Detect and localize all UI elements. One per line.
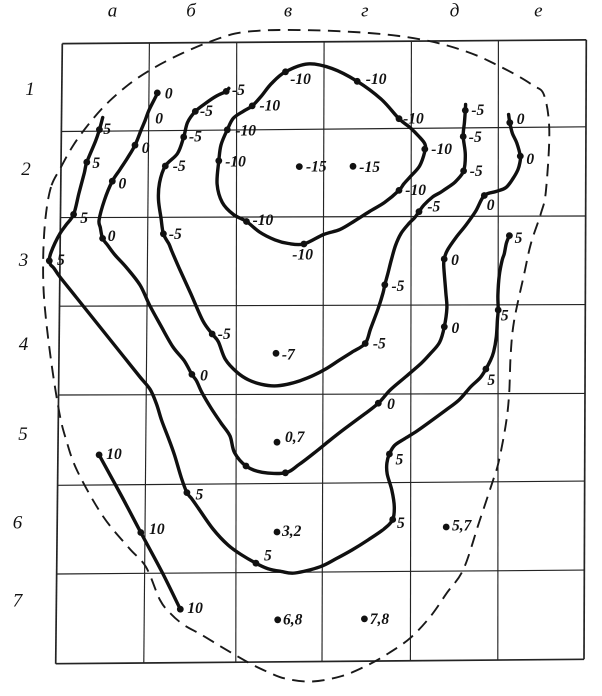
svg-text:7,8: 7,8 <box>370 611 390 628</box>
svg-text:-10: -10 <box>225 154 246 171</box>
svg-text:-5: -5 <box>469 129 482 146</box>
svg-text:-5: -5 <box>373 336 386 353</box>
svg-text:0: 0 <box>155 111 163 128</box>
svg-text:0: 0 <box>119 176 127 193</box>
svg-text:10: 10 <box>106 446 122 463</box>
svg-text:-10: -10 <box>260 98 281 115</box>
svg-text:-10: -10 <box>403 111 424 128</box>
svg-text:3: 3 <box>18 250 29 271</box>
svg-text:-5: -5 <box>218 326 231 343</box>
svg-text:5: 5 <box>18 424 28 445</box>
svg-text:-10: -10 <box>253 212 274 229</box>
svg-text:5,7: 5,7 <box>452 518 473 535</box>
svg-text:5: 5 <box>80 210 88 227</box>
svg-text:0: 0 <box>451 252 459 269</box>
svg-text:1: 1 <box>25 79 35 100</box>
svg-text:0: 0 <box>387 396 395 413</box>
svg-text:3,2: 3,2 <box>281 523 302 540</box>
svg-text:0: 0 <box>142 140 150 157</box>
svg-text:-10: -10 <box>292 247 313 264</box>
svg-text:-5: -5 <box>232 82 245 99</box>
svg-text:0: 0 <box>526 151 534 168</box>
svg-text:0: 0 <box>200 368 208 385</box>
svg-text:-7: -7 <box>282 347 296 364</box>
svg-text:7: 7 <box>13 591 24 612</box>
svg-text:д: д <box>450 1 460 22</box>
svg-text:5: 5 <box>501 308 509 325</box>
svg-text:5: 5 <box>57 252 65 269</box>
svg-text:5: 5 <box>196 487 204 504</box>
svg-text:5: 5 <box>487 372 495 389</box>
svg-text:-5: -5 <box>189 129 202 146</box>
svg-text:-5: -5 <box>173 158 186 175</box>
svg-text:0: 0 <box>108 228 116 245</box>
svg-text:г: г <box>361 1 368 22</box>
svg-text:4: 4 <box>19 334 29 355</box>
svg-text:а: а <box>108 1 118 22</box>
svg-text:2: 2 <box>21 159 31 180</box>
svg-text:-5: -5 <box>471 102 484 119</box>
svg-text:5: 5 <box>103 121 111 138</box>
svg-text:-10: -10 <box>235 123 256 140</box>
svg-text:10: 10 <box>187 600 203 617</box>
svg-text:-10: -10 <box>405 182 426 199</box>
svg-text:5: 5 <box>264 548 272 565</box>
svg-text:0: 0 <box>452 320 460 337</box>
svg-text:-5: -5 <box>169 226 182 243</box>
svg-text:6: 6 <box>13 513 23 534</box>
svg-text:5: 5 <box>397 515 405 532</box>
svg-text:5: 5 <box>515 230 523 247</box>
svg-text:-5: -5 <box>200 103 213 120</box>
svg-text:5: 5 <box>396 452 404 469</box>
svg-text:-15: -15 <box>306 159 327 176</box>
svg-text:6,8: 6,8 <box>283 611 303 628</box>
svg-text:10: 10 <box>149 521 165 538</box>
svg-text:-5: -5 <box>392 278 405 295</box>
svg-text:0,7: 0,7 <box>285 429 306 446</box>
svg-text:-5: -5 <box>470 163 483 180</box>
svg-text:в: в <box>284 1 292 22</box>
svg-text:е: е <box>534 1 542 22</box>
svg-text:-10: -10 <box>366 71 387 88</box>
svg-text:-5: -5 <box>427 199 440 216</box>
svg-text:-10: -10 <box>431 141 452 158</box>
svg-text:-10: -10 <box>290 71 311 88</box>
svg-text:0: 0 <box>487 197 495 214</box>
svg-text:0: 0 <box>517 111 525 128</box>
svg-text:-15: -15 <box>359 159 380 176</box>
svg-text:5: 5 <box>92 155 100 172</box>
svg-text:б: б <box>186 1 197 22</box>
svg-text:0: 0 <box>165 85 173 102</box>
